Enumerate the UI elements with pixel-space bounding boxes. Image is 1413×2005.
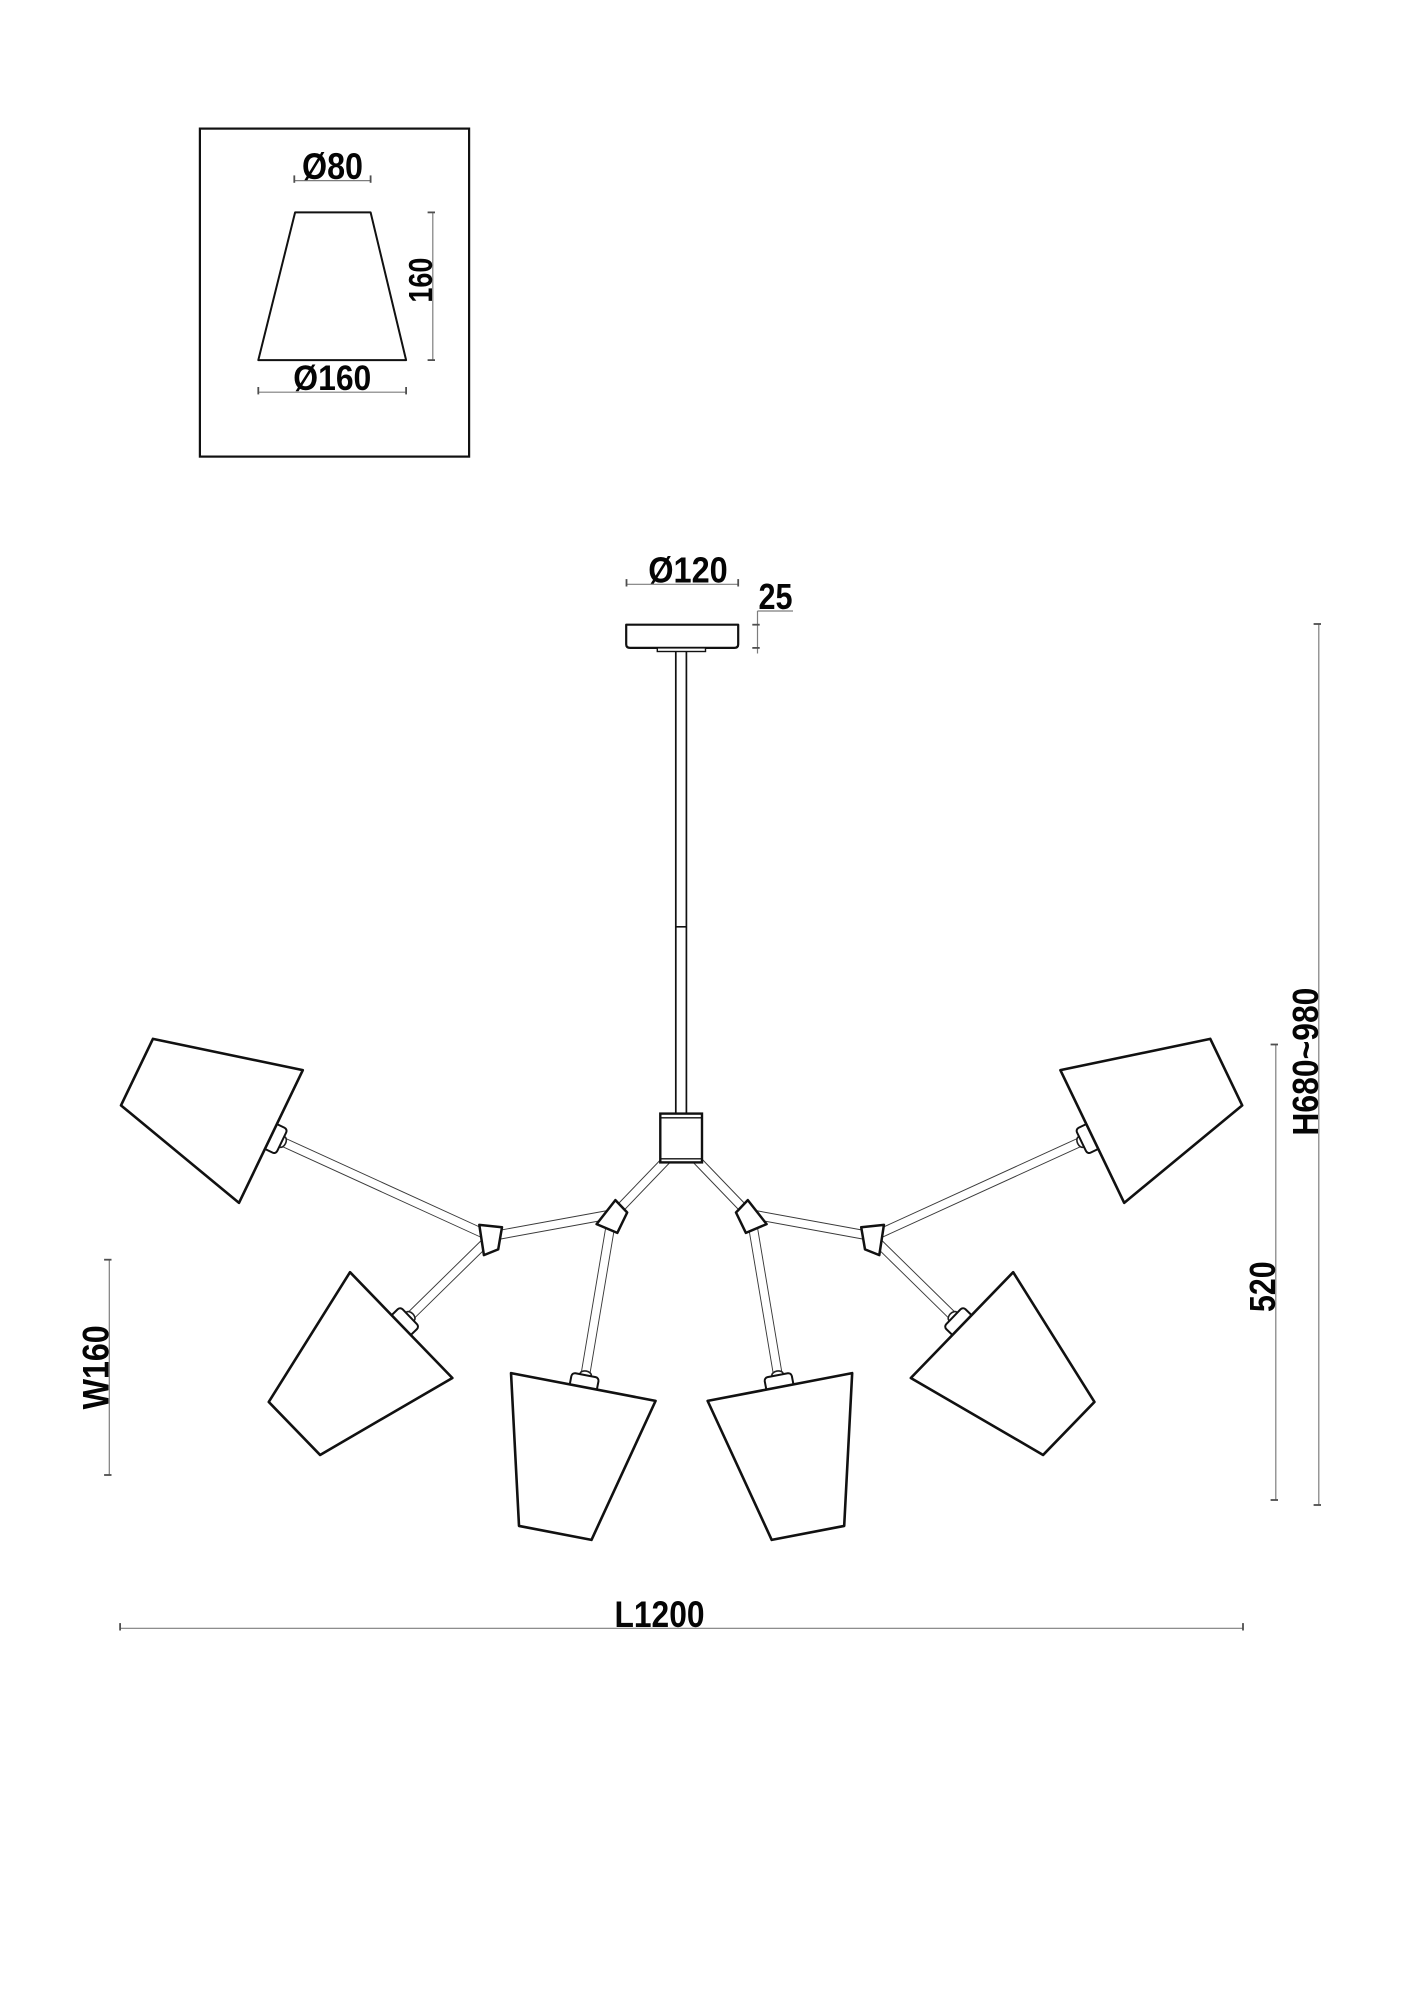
svg-text:520: 520 — [1242, 1261, 1283, 1312]
svg-text:W160: W160 — [75, 1325, 116, 1409]
svg-text:Ø120: Ø120 — [648, 550, 728, 591]
svg-text:L1200: L1200 — [615, 1594, 705, 1635]
svg-text:25: 25 — [759, 576, 793, 617]
svg-text:160: 160 — [402, 258, 439, 303]
svg-text:H680~980: H680~980 — [1285, 988, 1326, 1136]
svg-text:Ø160: Ø160 — [293, 359, 371, 398]
svg-text:Ø80: Ø80 — [302, 146, 363, 187]
